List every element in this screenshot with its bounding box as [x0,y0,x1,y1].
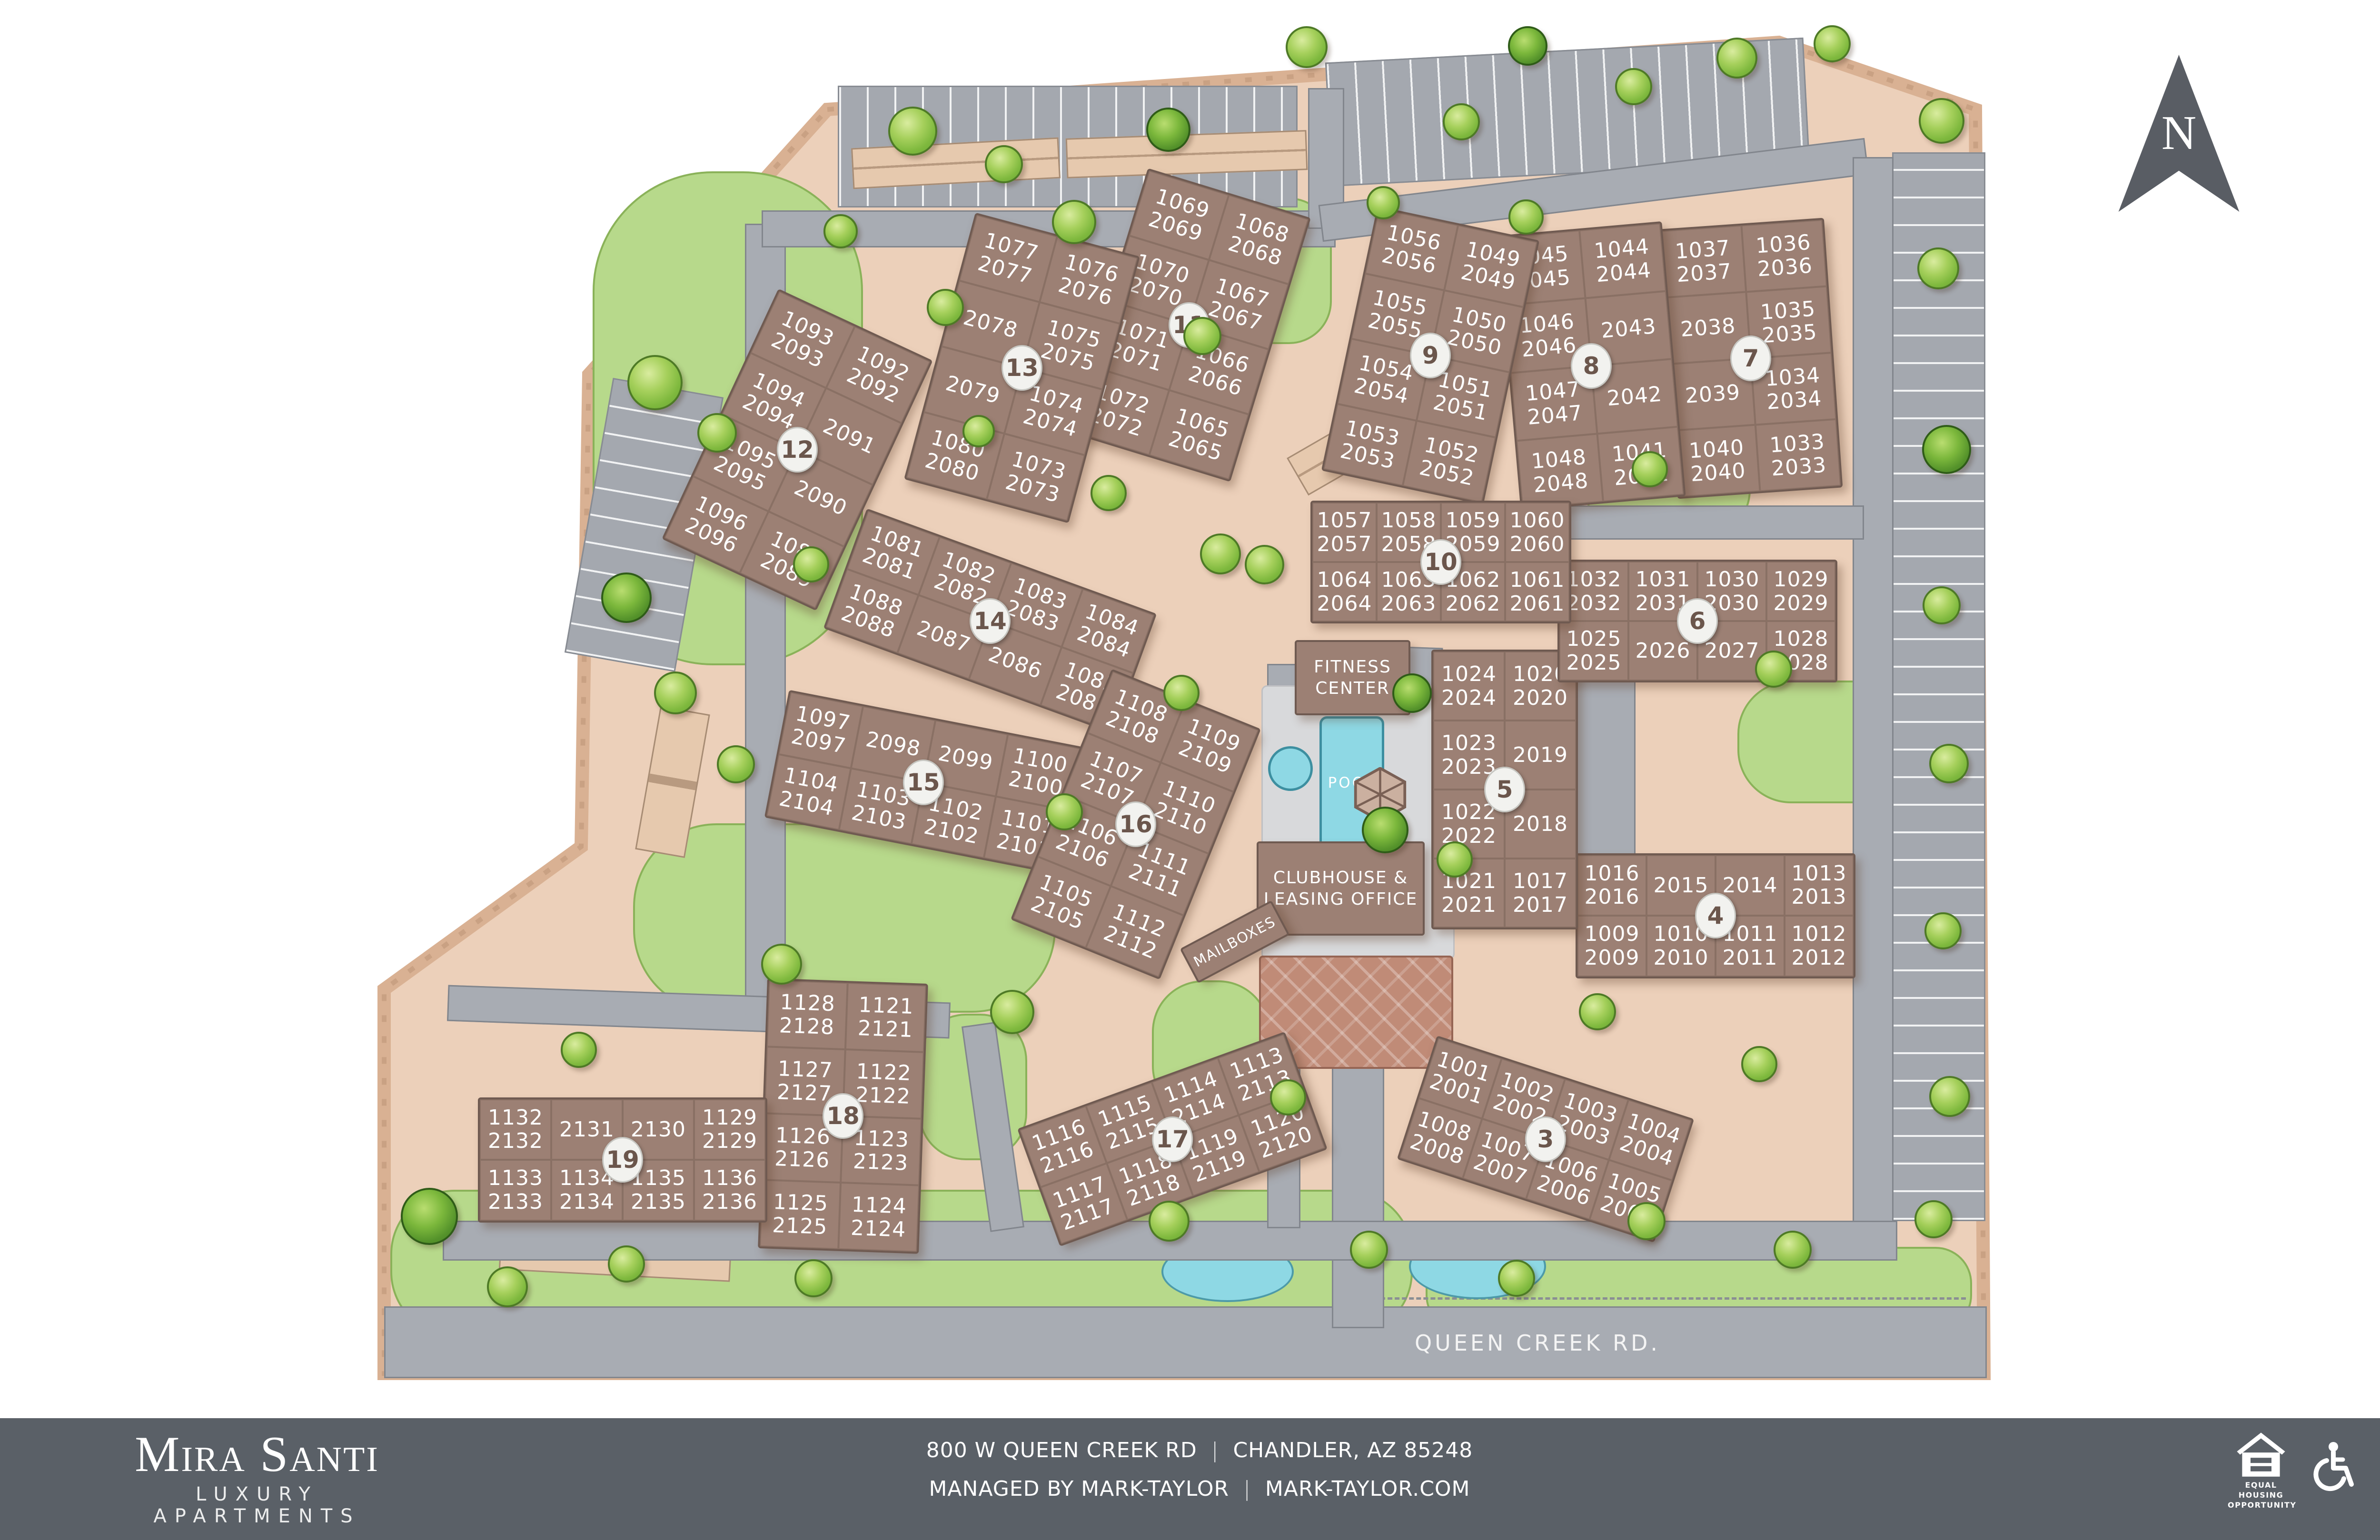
fitness-label-line2: CENTER [1315,678,1390,699]
unit-cell: 1036 2036 [1741,220,1826,292]
tree-icon [1922,425,1971,474]
tree-icon [1367,186,1400,219]
tree-icon [1392,673,1432,713]
fitness-label-line1: FITNESS [1314,656,1391,678]
tree-icon [1163,675,1200,711]
tree-icon [1498,1260,1535,1297]
managed-site: MARK-TAYLOR.COM [1265,1477,1470,1501]
tree-icon [1052,200,1096,244]
brand-logo: Mira Santi LUXURY APARTMENTS [95,1427,419,1527]
unit-cell: 1136 2136 [694,1160,765,1221]
tree-icon [561,1032,597,1068]
building-number-badge: 5 [1484,767,1525,812]
tree-icon [1716,38,1757,79]
queen-creek-rd-label: QUEEN CREEK RD. [1347,1330,1728,1356]
tree-icon [697,413,737,453]
tree-icon [627,355,683,410]
footer-address-block: 800 W QUEEN CREEK RD|CHANDLER, AZ 85248 … [904,1438,1495,1515]
unit-cell: 1132 2132 [480,1099,551,1160]
unit-cell: 1057 2057 [1312,503,1377,562]
building-number-badge: 13 [1002,345,1042,391]
unit-cell: 1016 2016 [1577,855,1646,916]
tree-icon [487,1266,528,1307]
unit-cell: 1121 2121 [845,983,926,1052]
unit-cell: 1012 2012 [1785,916,1854,977]
building-number-badge: 17 [1152,1116,1193,1162]
tree-icon [1923,586,1961,624]
building-number-badge: 19 [602,1137,643,1183]
tree-icon [1350,1231,1388,1269]
accessibility-icon [2309,1438,2356,1495]
footer-address-line: 800 W QUEEN CREEK RD|CHANDLER, AZ 85248 [904,1438,1495,1462]
unit-cell: 1104 2104 [766,754,851,830]
unit-cell: 1060 2060 [1505,503,1569,562]
tree-icon [1914,1200,1953,1238]
tree-icon [985,145,1023,183]
brand-tagline: LUXURY APARTMENTS [95,1483,419,1527]
unit-cell: 1129 2129 [694,1099,765,1160]
building-number-badge: 10 [1420,539,1461,585]
tree-icon [990,990,1034,1034]
unit-cell: 1124 2124 [838,1183,919,1252]
eho-label-line2: OPPORTUNITY [2228,1501,2294,1510]
tree-icon [1149,1201,1190,1242]
equal-housing-logo: EQUAL HOUSING OPPORTUNITY [2228,1431,2294,1510]
tree-icon [823,214,858,248]
equal-housing-icon [2235,1431,2287,1477]
tree-icon [654,671,697,714]
tree-icon [1924,912,1962,949]
clubhouse-label-line2: LEASING OFFICE [1264,888,1418,910]
tree-icon [1929,1076,1970,1117]
road-segment [384,1306,1987,1378]
fitness-center: FITNESS CENTER [1295,640,1410,715]
tree-icon [1579,993,1616,1030]
tree-icon [1362,807,1408,853]
building-4: 1016 2016201520141013 20131009 20091010 … [1576,853,1855,978]
tree-icon [794,1259,833,1297]
road-segment [1332,1059,1384,1328]
address-street: 800 W QUEEN CREEK RD [926,1438,1197,1462]
unit-cell: 1133 2133 [480,1160,551,1221]
tree-icon [1741,1046,1777,1082]
clubhouse-label-line1: CLUBHOUSE & [1273,867,1408,888]
unit-cell: 1125 2125 [760,1180,841,1249]
tree-icon [1632,451,1668,487]
tree-icon [1286,26,1328,68]
tree-icon [1929,744,1969,783]
separator: | [1229,1477,1265,1501]
building-number-badge: 8 [1571,343,1612,389]
unit-cell: 1037 2037 [1661,226,1746,298]
building-number-badge: 7 [1730,336,1771,381]
tree-icon [1814,25,1851,62]
building-number-badge: 15 [903,759,944,805]
tree-icon [927,289,964,326]
building-number-badge: 9 [1410,333,1451,378]
brand-name: Mira Santi [95,1427,419,1482]
tree-icon [1508,199,1544,235]
unit-cell: 1048 2048 [1517,434,1603,508]
unit-cell: 1017 2017 [1505,859,1576,928]
tree-icon [1627,1202,1666,1240]
tree-icon [1508,26,1547,66]
unit-cell: 1061 2061 [1505,562,1569,622]
tree-icon [1245,545,1284,584]
unit-cell: 1009 2009 [1577,916,1646,977]
unit-cell: 1013 2013 [1785,855,1854,916]
separator: | [1197,1438,1233,1462]
unit-cell: 1044 2044 [1579,223,1666,298]
tree-icon [888,107,937,156]
tree-icon [1146,108,1190,152]
building-number-badge: 3 [1525,1116,1566,1162]
building-5: 1024 20241020 20201023 202320191022 2022… [1431,650,1578,929]
unit-cell: 1128 2128 [767,980,848,1049]
north-label: N [2162,106,2196,159]
tree-icon [1919,98,1964,144]
tree-icon [1774,1231,1812,1269]
managed-by: MANAGED BY MARK-TAYLOR [929,1477,1229,1501]
footer-managed-line: MANAGED BY MARK-TAYLOR|MARK-TAYLOR.COM [904,1477,1495,1501]
site-map: POOL FITNESS CENTER CLUBHOUSE & LEASING … [0,0,2380,1418]
building-18: 1128 21281121 21211127 21271122 21221126… [758,978,928,1254]
building-6: 1032 20321031 20311030 20301029 20291025… [1557,560,1837,682]
unit-cell: 1040 2040 [1675,425,1760,497]
north-arrow-icon: N [2118,55,2240,212]
tree-icon [401,1188,458,1245]
eho-label-line1: EQUAL HOUSING [2228,1481,2294,1501]
building-number-badge: 14 [970,598,1011,644]
building-number-badge: 16 [1115,801,1156,847]
unit-cell: 1064 2064 [1312,562,1377,622]
tree-icon [1200,533,1241,574]
tree-icon [1091,475,1127,511]
footer-bar: Mira Santi LUXURY APARTMENTS 800 W QUEEN… [0,1418,2380,1540]
tree-icon [1046,793,1083,830]
road-segment [1853,157,1894,1235]
tree-icon [601,573,652,623]
building-number-badge: 6 [1677,598,1718,644]
tree-icon [1437,841,1473,878]
building-number-badge: 4 [1695,893,1736,938]
building-7: 1037 20371036 203620381035 203520391034 … [1659,218,1843,499]
tree-icon [1615,68,1652,105]
tree-icon [793,546,829,582]
building-number-badge: 18 [823,1093,863,1139]
tree-icon [761,944,802,985]
parking-lot [1892,152,1985,1221]
tree-icon [608,1245,645,1283]
tree-icon [1755,651,1792,688]
unit-cell: 1024 2024 [1433,652,1505,721]
spa [1268,746,1313,791]
building-19: 1132 2132213121301129 21291133 21331134 … [478,1097,767,1223]
unit-cell: 1025 2025 [1559,621,1628,681]
building-10: 1057 20571058 20581059 20591060 20601064… [1310,501,1571,623]
tree-icon [717,745,755,783]
building-number-badge: 12 [777,427,818,473]
tree-icon [1443,103,1480,140]
tree-icon [962,415,995,447]
tree-icon [1270,1079,1306,1116]
address-city: CHANDLER, AZ 85248 [1233,1438,1473,1462]
tree-icon [1917,247,1959,289]
unit-cell: 1029 2029 [1766,562,1835,621]
tree-icon [1183,317,1221,355]
unit-cell: 1033 2033 [1755,419,1841,492]
